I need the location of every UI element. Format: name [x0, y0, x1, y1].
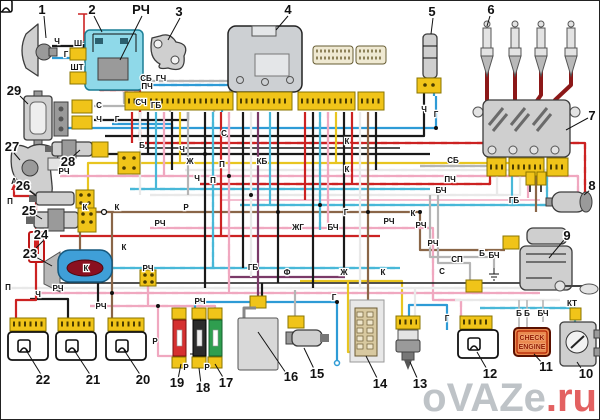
callout-4: 4: [284, 2, 292, 17]
wire-label-КТ: КТ: [567, 299, 577, 308]
callout-18: 18: [196, 380, 210, 395]
wire-label-ЖГ: ЖГ: [291, 223, 304, 232]
watermark-site: oVAZe: [422, 376, 546, 420]
wire-label-Р: Р: [183, 203, 189, 212]
wire-label-К: К: [411, 209, 416, 218]
wire-label-РЧ: РЧ: [155, 219, 166, 228]
connector-block: [237, 92, 292, 110]
connector-14: [350, 300, 384, 362]
wire-label-П: П: [210, 176, 216, 185]
connector-block: [570, 308, 581, 320]
wire-label-Ч: Ч: [35, 290, 41, 299]
wire-label-РЧ: РЧ: [143, 264, 154, 273]
wire-label-РЧ: РЧ: [384, 217, 395, 226]
connector-block: [70, 72, 86, 84]
wire-label-СП: СП: [451, 255, 463, 264]
connector-block: [208, 308, 222, 319]
wire-label-П: П: [219, 160, 225, 169]
check-engine-line1: CHECK: [520, 335, 545, 342]
connector-block: [466, 280, 482, 292]
wire-label-Ч: Ч: [96, 115, 102, 124]
wire-label-БЧ: БЧ: [327, 223, 338, 232]
wire-junction: [318, 203, 322, 207]
callout-2: 2: [88, 2, 95, 17]
callout-11: 11: [539, 359, 553, 374]
callout-23: 23: [23, 246, 37, 261]
fuse-18: [192, 308, 206, 368]
connector-block: [537, 172, 546, 185]
callout-5: 5: [428, 4, 435, 19]
wire-label-Ж: Ж: [185, 157, 194, 166]
connector-block: [118, 152, 140, 174]
wire-label-ПЧ: ПЧ: [444, 175, 456, 184]
wire-label-Ч: Ч: [54, 37, 60, 46]
check-engine-line2: ENGINE: [519, 344, 546, 351]
wiring-diagram-page: CHECK ENGINE ЧГШШТПЧСЧГС: [0, 0, 600, 420]
wire-label-Г: Г: [434, 110, 439, 119]
wire-label-РЧ: РЧ: [96, 302, 107, 311]
connector-block: [70, 48, 86, 60]
wire-label-ГБ: ГБ: [151, 101, 162, 110]
wire-label-Ч: Ч: [194, 174, 200, 183]
wire-label-Г: Г: [115, 115, 120, 124]
ecu-controller: [228, 26, 302, 92]
wire-junction: [335, 361, 340, 366]
callout-29: 29: [7, 83, 21, 98]
callout-20: 20: [136, 372, 150, 387]
ecu-pin-strips: [125, 92, 384, 110]
callout-24: 24: [34, 227, 49, 242]
callout-21: 21: [86, 372, 100, 387]
wire-label-РЧ: РЧ: [428, 239, 439, 248]
connector-block: [250, 296, 266, 308]
wire-label-К: К: [345, 137, 350, 146]
wire-label-Ч: Ч: [179, 145, 185, 154]
wire-label-П: П: [5, 283, 11, 292]
wire-label-ГБ: ГБ: [248, 263, 259, 272]
wire-label-Г: Г: [332, 293, 337, 302]
wire-junction: [418, 210, 422, 214]
wire-label-РЧ: РЧ: [195, 297, 206, 306]
callout-9: 9: [563, 228, 570, 243]
ignition-module: [473, 100, 580, 176]
callout-1: 1: [38, 2, 45, 17]
wire-junction: [156, 304, 160, 308]
wire-label-К: К: [115, 203, 120, 212]
wire-label-К: К: [83, 203, 88, 212]
wire-label-БЧ: БЧ: [537, 309, 548, 318]
check-engine-lamp: CHECK ENGINE: [514, 328, 550, 356]
ecu-harness-connector: [313, 46, 386, 64]
connector-block: [208, 357, 222, 368]
sensor-28: [45, 140, 108, 158]
wire-label-С: С: [96, 101, 102, 110]
wire-label-ШТ: ШТ: [71, 63, 84, 72]
engine-wiring-diagram: CHECK ENGINE ЧГШШТПЧСЧГС: [0, 0, 600, 420]
wire-label-РЧ: РЧ: [416, 221, 427, 230]
connector-block: [288, 316, 304, 328]
wire-label-К: К: [381, 268, 386, 277]
wire-label-К: К: [345, 165, 350, 174]
wire-label-ГЧ: ГЧ: [156, 74, 167, 83]
callout-28: 28: [61, 154, 75, 169]
wire-label-Р: Р: [204, 363, 210, 372]
watermark-tld: .ru: [546, 376, 597, 420]
wire-label-Р: Р: [183, 363, 189, 372]
fuse-19: [172, 308, 186, 368]
main-relay: [85, 30, 143, 90]
connector-block: [526, 172, 535, 185]
wire-label-Б: Б: [479, 249, 485, 258]
wire-junction: [110, 291, 114, 295]
callout-22: 22: [36, 372, 50, 387]
wire-junction: [102, 210, 107, 215]
wire-label-Г: Г: [64, 50, 69, 59]
connector-block: [72, 116, 92, 129]
watermark: oVAZe.ru: [422, 376, 597, 420]
wire-label-БЧ: БЧ: [488, 251, 499, 260]
wire-junction: [366, 210, 370, 214]
callout-26: 26: [16, 178, 30, 193]
connector-block: [92, 142, 108, 157]
connector-block: [172, 308, 186, 319]
callout-19: 19: [170, 375, 184, 390]
wire-label-ПЧ: ПЧ: [141, 82, 153, 91]
wire-label-Г: Г: [445, 314, 450, 323]
wire-label-П: П: [7, 197, 13, 206]
wire-label-Ж: Ж: [339, 268, 348, 277]
callout-7: 7: [588, 108, 595, 123]
wire-label-К: К: [84, 264, 89, 273]
wire-label-Ф: Ф: [284, 268, 291, 277]
callout-17: 17: [219, 375, 233, 390]
wire-label-СБ: СБ: [447, 156, 459, 165]
wire-label-К: К: [122, 243, 127, 252]
wire-label-С: С: [221, 129, 227, 138]
wire-label-ГБ: ГБ: [509, 196, 520, 205]
wire-label-Б: Б: [516, 309, 522, 318]
wire-label-С: С: [439, 267, 445, 276]
wire-label-КБ: КБ: [257, 157, 268, 166]
wire-junction: [276, 210, 280, 214]
connector-block: [192, 308, 206, 319]
callout-3: 3: [175, 4, 182, 19]
wire-label-Р: Р: [152, 337, 158, 346]
wire-label-БЧ: БЧ: [435, 186, 446, 195]
wire-junction: [249, 193, 253, 197]
connector-block: [417, 78, 441, 93]
callout-14: 14: [373, 376, 388, 391]
wire-label-Ш: Ш: [74, 39, 82, 48]
connector-block: [503, 236, 519, 249]
wire-label-СБ: СБ: [140, 74, 152, 83]
callout-25: 25: [22, 203, 36, 218]
wire-label-Г: Г: [344, 208, 349, 217]
wire-label-Б: Б: [524, 309, 530, 318]
connector-block: [72, 100, 92, 113]
wire-label-РЧ: РЧ: [53, 284, 64, 293]
callout-27: 27: [5, 139, 19, 154]
wire-junction: [203, 152, 207, 156]
wire-label-Б: Б: [139, 141, 145, 150]
wire-label-Ч: Ч: [421, 105, 427, 114]
wire-label-СЧ: СЧ: [135, 98, 147, 107]
callout-РЧ: РЧ: [132, 2, 150, 17]
callout-16: 16: [284, 369, 298, 384]
callout-8: 8: [588, 178, 595, 193]
callout-15: 15: [310, 366, 324, 381]
callout-6: 6: [487, 2, 494, 17]
fuse-17: [208, 308, 222, 368]
wire-junction: [227, 174, 231, 178]
wire-junction: [434, 126, 438, 130]
